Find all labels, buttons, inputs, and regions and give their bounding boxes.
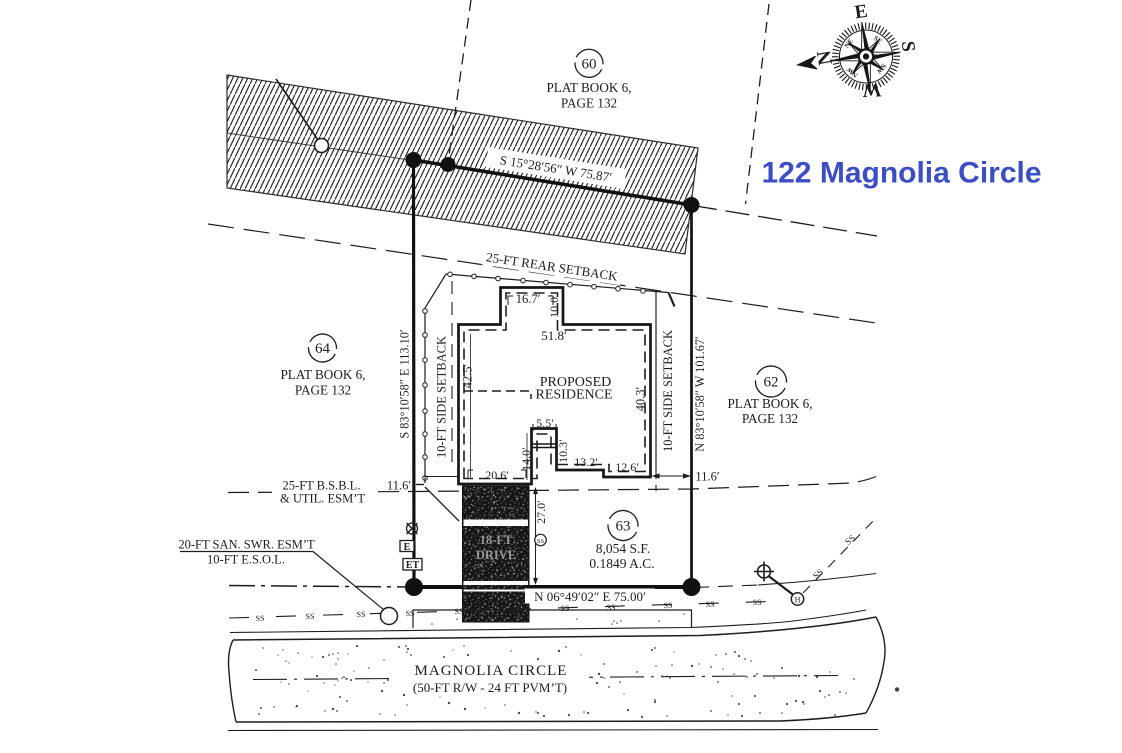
svg-text:12.6′: 12.6′ — [615, 460, 639, 474]
svg-text:PLAT BOOK 6,: PLAT BOOK 6, — [727, 396, 812, 411]
svg-text:E: E — [404, 542, 411, 553]
svg-text:62: 62 — [764, 375, 779, 391]
svg-text:H: H — [795, 596, 801, 605]
svg-text:PLAT BOOK 6,: PLAT BOOK 6, — [280, 367, 365, 382]
svg-text:11.6′: 11.6′ — [695, 470, 719, 484]
svg-text:10.0′: 10.0′ — [547, 294, 561, 318]
svg-text:PLAT BOOK 6,: PLAT BOOK 6, — [546, 80, 631, 95]
svg-text:S: S — [897, 40, 919, 52]
svg-text:SS: SS — [752, 598, 761, 607]
svg-text:N 83°10′58″ W 101.67′: N 83°10′58″ W 101.67′ — [693, 336, 707, 452]
svg-text:N 06°49′02″ E 75.00′: N 06°49′02″ E 75.00′ — [534, 589, 646, 604]
svg-text:RESIDENCE: RESIDENCE — [536, 388, 613, 403]
svg-text:18-FT: 18-FT — [480, 533, 513, 547]
svg-text:MAGNOLIA CIRCLE: MAGNOLIA CIRCLE — [415, 663, 568, 679]
svg-text:13.2′: 13.2′ — [574, 455, 598, 469]
svg-text:14.0′: 14.0′ — [519, 447, 533, 471]
svg-text:20-FT SAN. SWR. ESM’T: 20-FT SAN. SWR. ESM’T — [178, 538, 315, 552]
svg-text:SS: SS — [305, 612, 314, 621]
svg-text:10.3′: 10.3′ — [556, 439, 570, 463]
svg-text:PAGE 132: PAGE 132 — [742, 411, 798, 426]
svg-text:SS: SS — [454, 607, 463, 616]
svg-text:5.5′: 5.5′ — [536, 416, 554, 430]
svg-text:8,054 S.F.: 8,054 S.F. — [596, 541, 650, 556]
svg-text:16.7′: 16.7′ — [516, 292, 541, 306]
svg-text:SS: SS — [606, 603, 615, 612]
svg-text:10-FT E.S.O.L.: 10-FT E.S.O.L. — [207, 553, 285, 567]
svg-text:0.1849 A.C.: 0.1849 A.C. — [589, 556, 654, 571]
svg-text:11.6′: 11.6′ — [387, 479, 411, 493]
svg-text:PAGE 132: PAGE 132 — [295, 383, 351, 398]
svg-text:25-FT B.S.B.L.: 25-FT B.S.B.L. — [283, 479, 361, 493]
svg-text:& UTIL. ESM’T: & UTIL. ESM’T — [280, 492, 365, 506]
svg-text:64: 64 — [315, 341, 331, 357]
svg-text:SS: SS — [356, 610, 365, 619]
svg-text:W: W — [862, 79, 882, 101]
svg-text:SS: SS — [705, 600, 714, 609]
svg-text:60: 60 — [582, 56, 597, 72]
svg-text:(50-FT R/W - 24 FT PVM’T): (50-FT R/W - 24 FT PVM’T) — [413, 680, 567, 695]
svg-text:51.8′: 51.8′ — [541, 328, 567, 343]
svg-text:10-FT SIDE SETBACK: 10-FT SIDE SETBACK — [661, 330, 675, 452]
svg-text:PAGE 132: PAGE 132 — [561, 96, 617, 111]
svg-text:SS: SS — [255, 614, 264, 623]
svg-text:DRIVE: DRIVE — [476, 548, 516, 562]
svg-text:10-FT SIDE SETBACK: 10-FT SIDE SETBACK — [435, 336, 449, 458]
svg-text:ET: ET — [406, 560, 420, 571]
svg-text:40.3′: 40.3′ — [634, 386, 648, 411]
svg-text:SS: SS — [663, 601, 672, 610]
svg-text:63: 63 — [616, 519, 631, 535]
svg-text:SS: SS — [560, 604, 569, 613]
svg-text:122 Magnolia Circle: 122 Magnolia Circle — [761, 157, 1041, 190]
svg-text:42.5′: 42.5′ — [461, 363, 475, 388]
svg-text:SS: SS — [537, 538, 545, 545]
svg-text:27.0′: 27.0′ — [534, 500, 548, 524]
svg-text:S 83°10′58″ E 113.10′: S 83°10′58″ E 113.10′ — [398, 329, 412, 439]
svg-text:20.6′: 20.6′ — [485, 468, 509, 482]
